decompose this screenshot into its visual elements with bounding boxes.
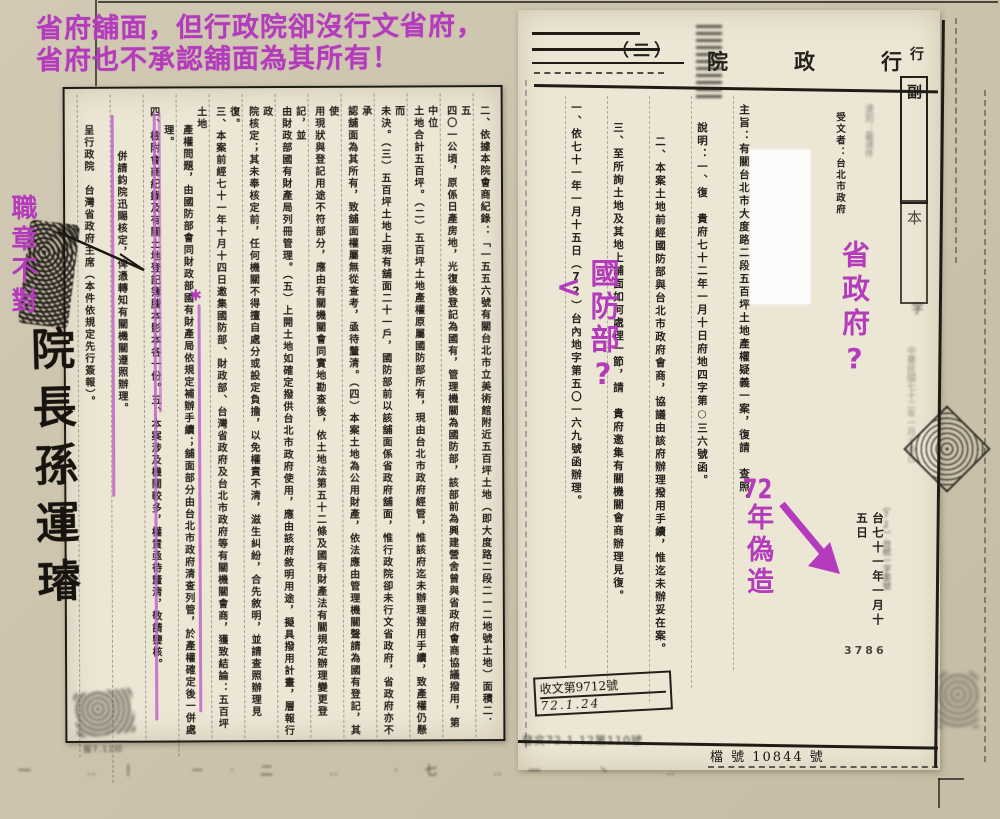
forged-note-text: 年偽造 [742, 503, 773, 599]
annotation-provincial-govt: 省政府? [834, 240, 874, 396]
backdrop-dashed-line-2 [984, 90, 986, 762]
typed-text-column: 產權問題，由國防部會同財政部國有財產局依規定補辦手續；舖面部分由台北市政府清查列… [176, 94, 199, 756]
paren-section-label: （二） [612, 36, 675, 61]
bottom-stamp-right: 檔 號 10844 號 [710, 746, 825, 765]
header-dashed-line [534, 72, 664, 74]
handwritten-signature: 院長孫運璿 [15, 325, 88, 672]
typed-text-column: 三、本案前經七十一年十月十四日邀集國防部、財政部、台灣省政府及台北市政府等有關機… [209, 94, 232, 738]
header-line-3 [532, 62, 684, 64]
typed-text-column: 二、依據本院會商紀錄：「一五五六號有關台北市立美術館附近五百坪土地（即大度路二段… [473, 93, 496, 737]
annotation-defense-ministry: 國防部? [582, 258, 624, 400]
typed-text-column: 四〇一公頃，原係日產房地，光復後登記為國有，管理機關為國防部，該部前為興建營舍曾… [440, 93, 463, 737]
annotation-top-line-2: 省府也不承認舖面為其所有！ [36, 43, 400, 77]
reference-number-column: （72）台統一字第號 [880, 502, 892, 652]
right-page-left-dotted-edge [525, 80, 527, 748]
title-character: 行 [881, 46, 902, 76]
copy-stamp-head: 行 [910, 44, 924, 64]
right-page-text-columns: 主旨：有關台北市大度路二段五百坪土地產權疑義一案，復請 查照。說明：一、復 貴府… [542, 96, 754, 662]
annotation-wrong-seal: 職章不對 [4, 194, 41, 330]
left-page-footer-note: 服7.12印 [83, 744, 123, 755]
left-document-page: 二、依據本院會商紀錄：「一五五六號有關台北市立美術館附近五百坪土地（即大度路二段… [63, 85, 506, 743]
backdrop-dashed-line-1 [955, 18, 957, 263]
header-line-1 [532, 32, 640, 35]
annotation-top-line-1: 省府舖面，但行政院卻沒行文省府， [36, 10, 484, 44]
annotation-left-arrowhead: < [556, 270, 581, 305]
title-character: 政 [794, 46, 815, 76]
bottom-dashed-line-1 [708, 766, 938, 768]
corner-mark-horizontal [938, 778, 964, 780]
typed-text-column: 土地合計五百坪。（二）五百坪土地產權原屬國防部所有，現由台北市政府經管，惟該府迄… [407, 93, 430, 737]
forged-note-arrow-icon [770, 492, 860, 592]
copy-stamp-tail-char: 字 [909, 302, 926, 314]
corner-mark-vertical [938, 778, 940, 808]
left-page-text-columns: 二、依據本院會商紀錄：「一五五六號有關台北市立美術館附近五百坪土地（即大度路二段… [75, 93, 496, 727]
typed-text-column: 認舖面為其所有，致舖面權屬無從查考，亟待釐清。（四）本案土地為公用財產，依法應由… [341, 94, 364, 738]
copy-stamp-box-lower: 本 [900, 200, 928, 304]
header-rule [534, 84, 938, 93]
ink-smudge-stamp [73, 688, 135, 738]
right-edge-smudge [938, 672, 978, 728]
right-page-right-border [934, 20, 944, 768]
whited-out-redaction-box [750, 150, 810, 304]
serial-number: 3786 [844, 644, 887, 657]
recipient-column: 受文者：台北市政府 [832, 112, 846, 252]
forged-note-number: 72 [742, 476, 773, 503]
backdrop-top-edge-line [98, 1, 998, 3]
speed-class-column: 速別：最速件 [862, 104, 875, 224]
magenta-star-mark: ✱ [189, 286, 202, 304]
copy-stamp-box-upper: 副 [900, 76, 928, 204]
typed-text-column: 二、本案土地前經國防部與台北市政府會商，協議由該府辦理撥用手續，惟迄未辦妥在案。 [649, 96, 670, 702]
typed-text-column: 院核定；其未奉核定前，任何機關不得擅自處分或設定負擔，以免權責不清，滋生糾紛，合… [242, 94, 265, 738]
bottom-stamp-left: 發文72.1.12第110號 [522, 732, 643, 748]
received-stamp-box: 收文第9712號 72.1.24 [533, 670, 673, 716]
typed-text-column: 說明：一、復 貴府七十二年一月十日府地四字第○三六號函。 [691, 96, 712, 688]
page-title-executive-yuan: 行政院 [707, 46, 902, 76]
faint-received-date-column: 中華民國七十二年一月十四日 [904, 346, 917, 636]
scanned-document-montage: 二、依據本院會商紀錄：「一五五六號有關台北市立美術館附近五百坪土地（即大度路二段… [0, 0, 1000, 819]
overlapping-stamp-smudge [696, 24, 722, 98]
typed-text-column: 由財政部國有財產局列冊管理。（五）上開土地如確定撥供台北市政府使用，應由該府敘明… [275, 94, 298, 738]
debris-smudge-row: 一 ‥丨 ㄧ·二 ‥ ·七 ‥一 丶 ‥ [18, 760, 718, 779]
typed-text-column: 用現狀與登記用途不符部分，應由有關機關會同實地勘查後，依土地法第五十二條及國有財… [308, 94, 331, 738]
typed-text-column: 未決。（三）五百坪土地上現有舖面二十一戶，國防部前以該舖面係省政府舖面，惟行政院… [374, 94, 397, 738]
